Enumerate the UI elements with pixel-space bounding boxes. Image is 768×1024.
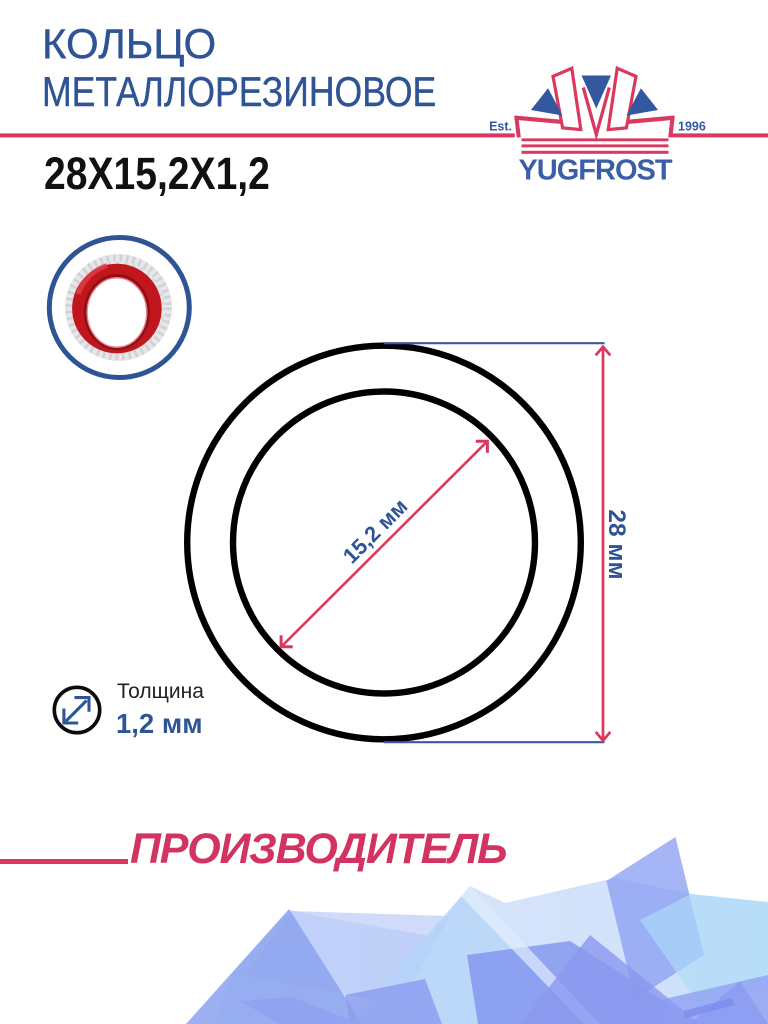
svg-text:1996: 1996 bbox=[678, 120, 706, 134]
svg-text:28 мм: 28 мм bbox=[603, 509, 630, 579]
svg-text:Est.: Est. bbox=[489, 120, 512, 134]
svg-text:YUGFROST: YUGFROST bbox=[518, 154, 672, 186]
svg-text:15,2 мм: 15,2 мм bbox=[338, 494, 413, 569]
